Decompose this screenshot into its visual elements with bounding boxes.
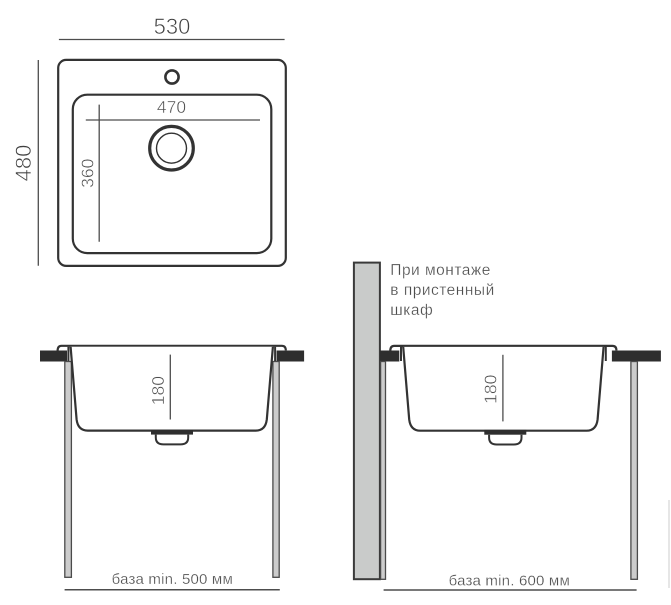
svg-text:360: 360 <box>78 158 98 187</box>
svg-text:470: 470 <box>157 97 186 117</box>
svg-text:180: 180 <box>481 374 501 403</box>
svg-text:180: 180 <box>148 376 168 405</box>
svg-text:шкаф: шкаф <box>390 302 433 319</box>
svg-text:480: 480 <box>11 145 36 182</box>
svg-text:в пристенный: в пристенный <box>390 282 494 299</box>
svg-text:база min. 500 мм: база min. 500 мм <box>112 571 233 588</box>
svg-text:база min. 600 мм: база min. 600 мм <box>449 573 570 590</box>
svg-text:530: 530 <box>154 14 191 39</box>
svg-text:При монтаже: При монтаже <box>390 262 491 279</box>
